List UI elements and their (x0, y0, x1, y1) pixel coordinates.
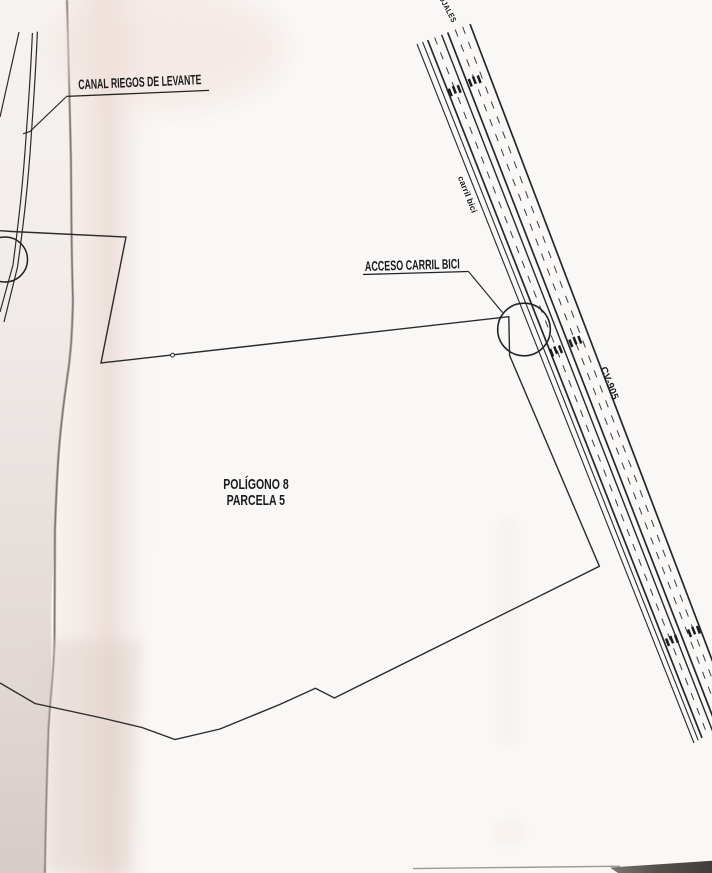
svg-text:ACCESO CARRIL BICI: ACCESO CARRIL BICI (365, 256, 460, 274)
svg-text:PARCELA 5: PARCELA 5 (227, 491, 285, 508)
svg-text:POLÍGONO 8: POLÍGONO 8 (223, 475, 288, 492)
